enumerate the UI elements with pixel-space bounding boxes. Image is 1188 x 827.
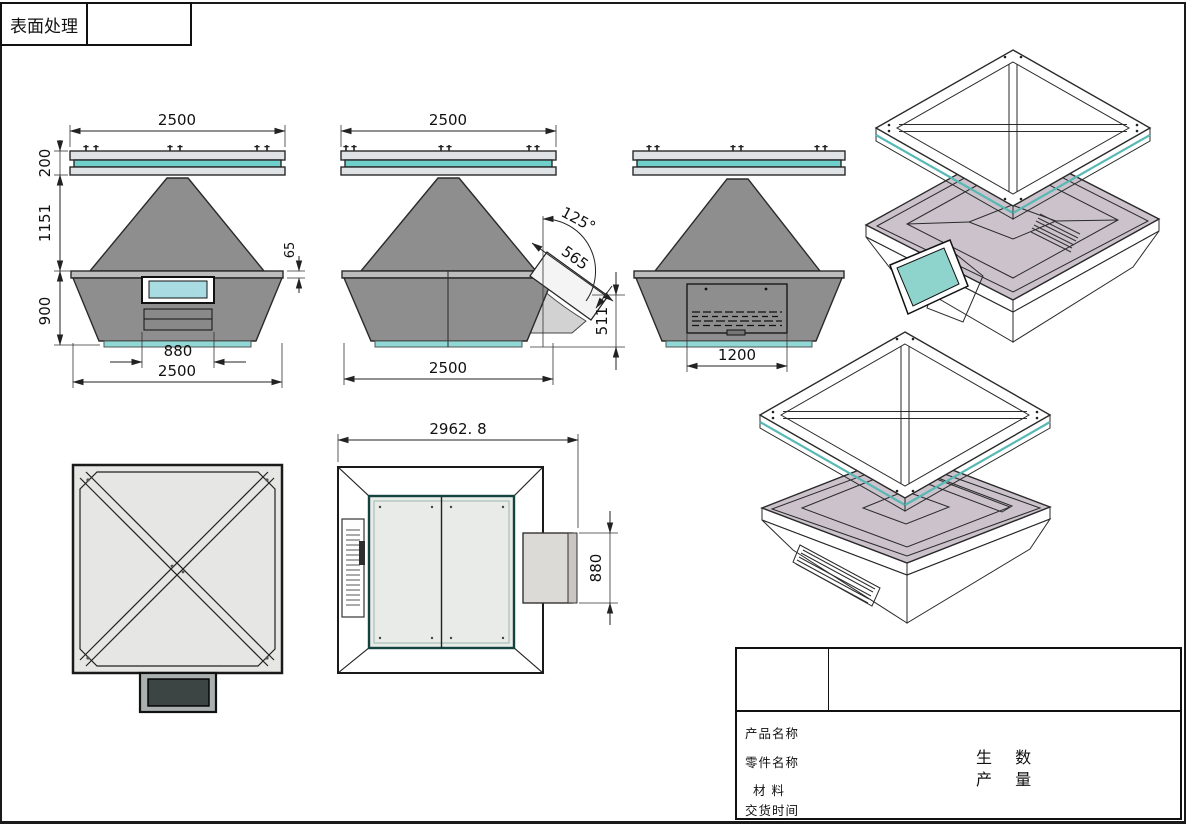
- dim-front-base-height: 900: [36, 297, 54, 326]
- side-vent-handle: [359, 541, 365, 565]
- side-vent-panel: [342, 519, 364, 617]
- side-view: 125° 565 511 2500 2500: [341, 111, 625, 385]
- top-panel-layer: [633, 151, 845, 160]
- frame-outline: [73, 465, 282, 673]
- dim-side-top-width: 2500: [429, 111, 467, 129]
- handle: [727, 330, 745, 335]
- plan-frame-view: [73, 465, 282, 712]
- duct-flange: [568, 533, 577, 603]
- back-view: 1200: [633, 145, 845, 372]
- top-panel-layer: [70, 151, 285, 160]
- iso-frame-outer: [876, 50, 1150, 206]
- dim-front-rim-height: 65: [283, 242, 298, 259]
- iso-view-upper: [866, 50, 1159, 342]
- iso-view-lower: [760, 332, 1050, 623]
- dim-front-panel-thickness: 200: [36, 149, 54, 178]
- dim-plan-overall-width: 2962. 8: [429, 420, 486, 438]
- dim-back-vent-width: 1200: [718, 346, 756, 364]
- dim-plan-duct-width: 880: [587, 554, 605, 583]
- rim-band: [634, 271, 844, 278]
- material-label: 材 料: [753, 780, 785, 799]
- title-block-divider: [735, 710, 1182, 712]
- screen-top-view-glass: [148, 679, 209, 706]
- plan-base-view: 2962. 8 880: [338, 420, 618, 673]
- top-panel-glass-layer: [74, 160, 281, 167]
- wall-bottom: [338, 647, 543, 673]
- delivery-time-label: 交货时间: [745, 800, 799, 819]
- product-name-label: 产品名称: [745, 723, 799, 742]
- pyramid-hood: [361, 178, 536, 271]
- dim-side-bottom-width: 2500: [429, 359, 467, 377]
- quantity-text-line1: 生 数: [976, 744, 1040, 768]
- tray: [144, 309, 212, 319]
- dim-front-bottom-width: 2500: [158, 362, 196, 380]
- top-panel-layer: [633, 167, 845, 175]
- duct-top-view: [523, 533, 572, 603]
- top-panel-layer: [70, 167, 285, 175]
- top-panel-layer: [341, 151, 556, 160]
- dim-side-duct-angle: 125°: [558, 203, 598, 236]
- dim-front-screen-width: 880: [164, 342, 193, 360]
- dim-front-cone-height: 1151: [36, 204, 54, 242]
- iso-frame-outer: [760, 332, 1050, 498]
- pyramid-hood: [655, 179, 820, 271]
- top-panel-glass-layer: [345, 160, 552, 167]
- screen: [149, 281, 207, 298]
- tray: [144, 319, 212, 330]
- title-block-column-divider: [828, 649, 829, 710]
- drawing-sheet: 表面处理: [0, 0, 1188, 827]
- dim-side-duct-height: 511: [593, 307, 611, 336]
- top-panel-layer: [341, 167, 556, 175]
- wall-top: [338, 467, 543, 497]
- title-block: [735, 647, 1182, 820]
- top-panel-glass-layer: [637, 160, 841, 167]
- quantity-text-line2: 产 量: [976, 766, 1040, 790]
- front-view: 2500 200 1151 900 65 880 2500: [36, 111, 305, 388]
- pyramid-hood: [90, 178, 264, 271]
- part-name-label: 零件名称: [745, 752, 799, 771]
- dim-front-top-width: 2500: [158, 111, 196, 129]
